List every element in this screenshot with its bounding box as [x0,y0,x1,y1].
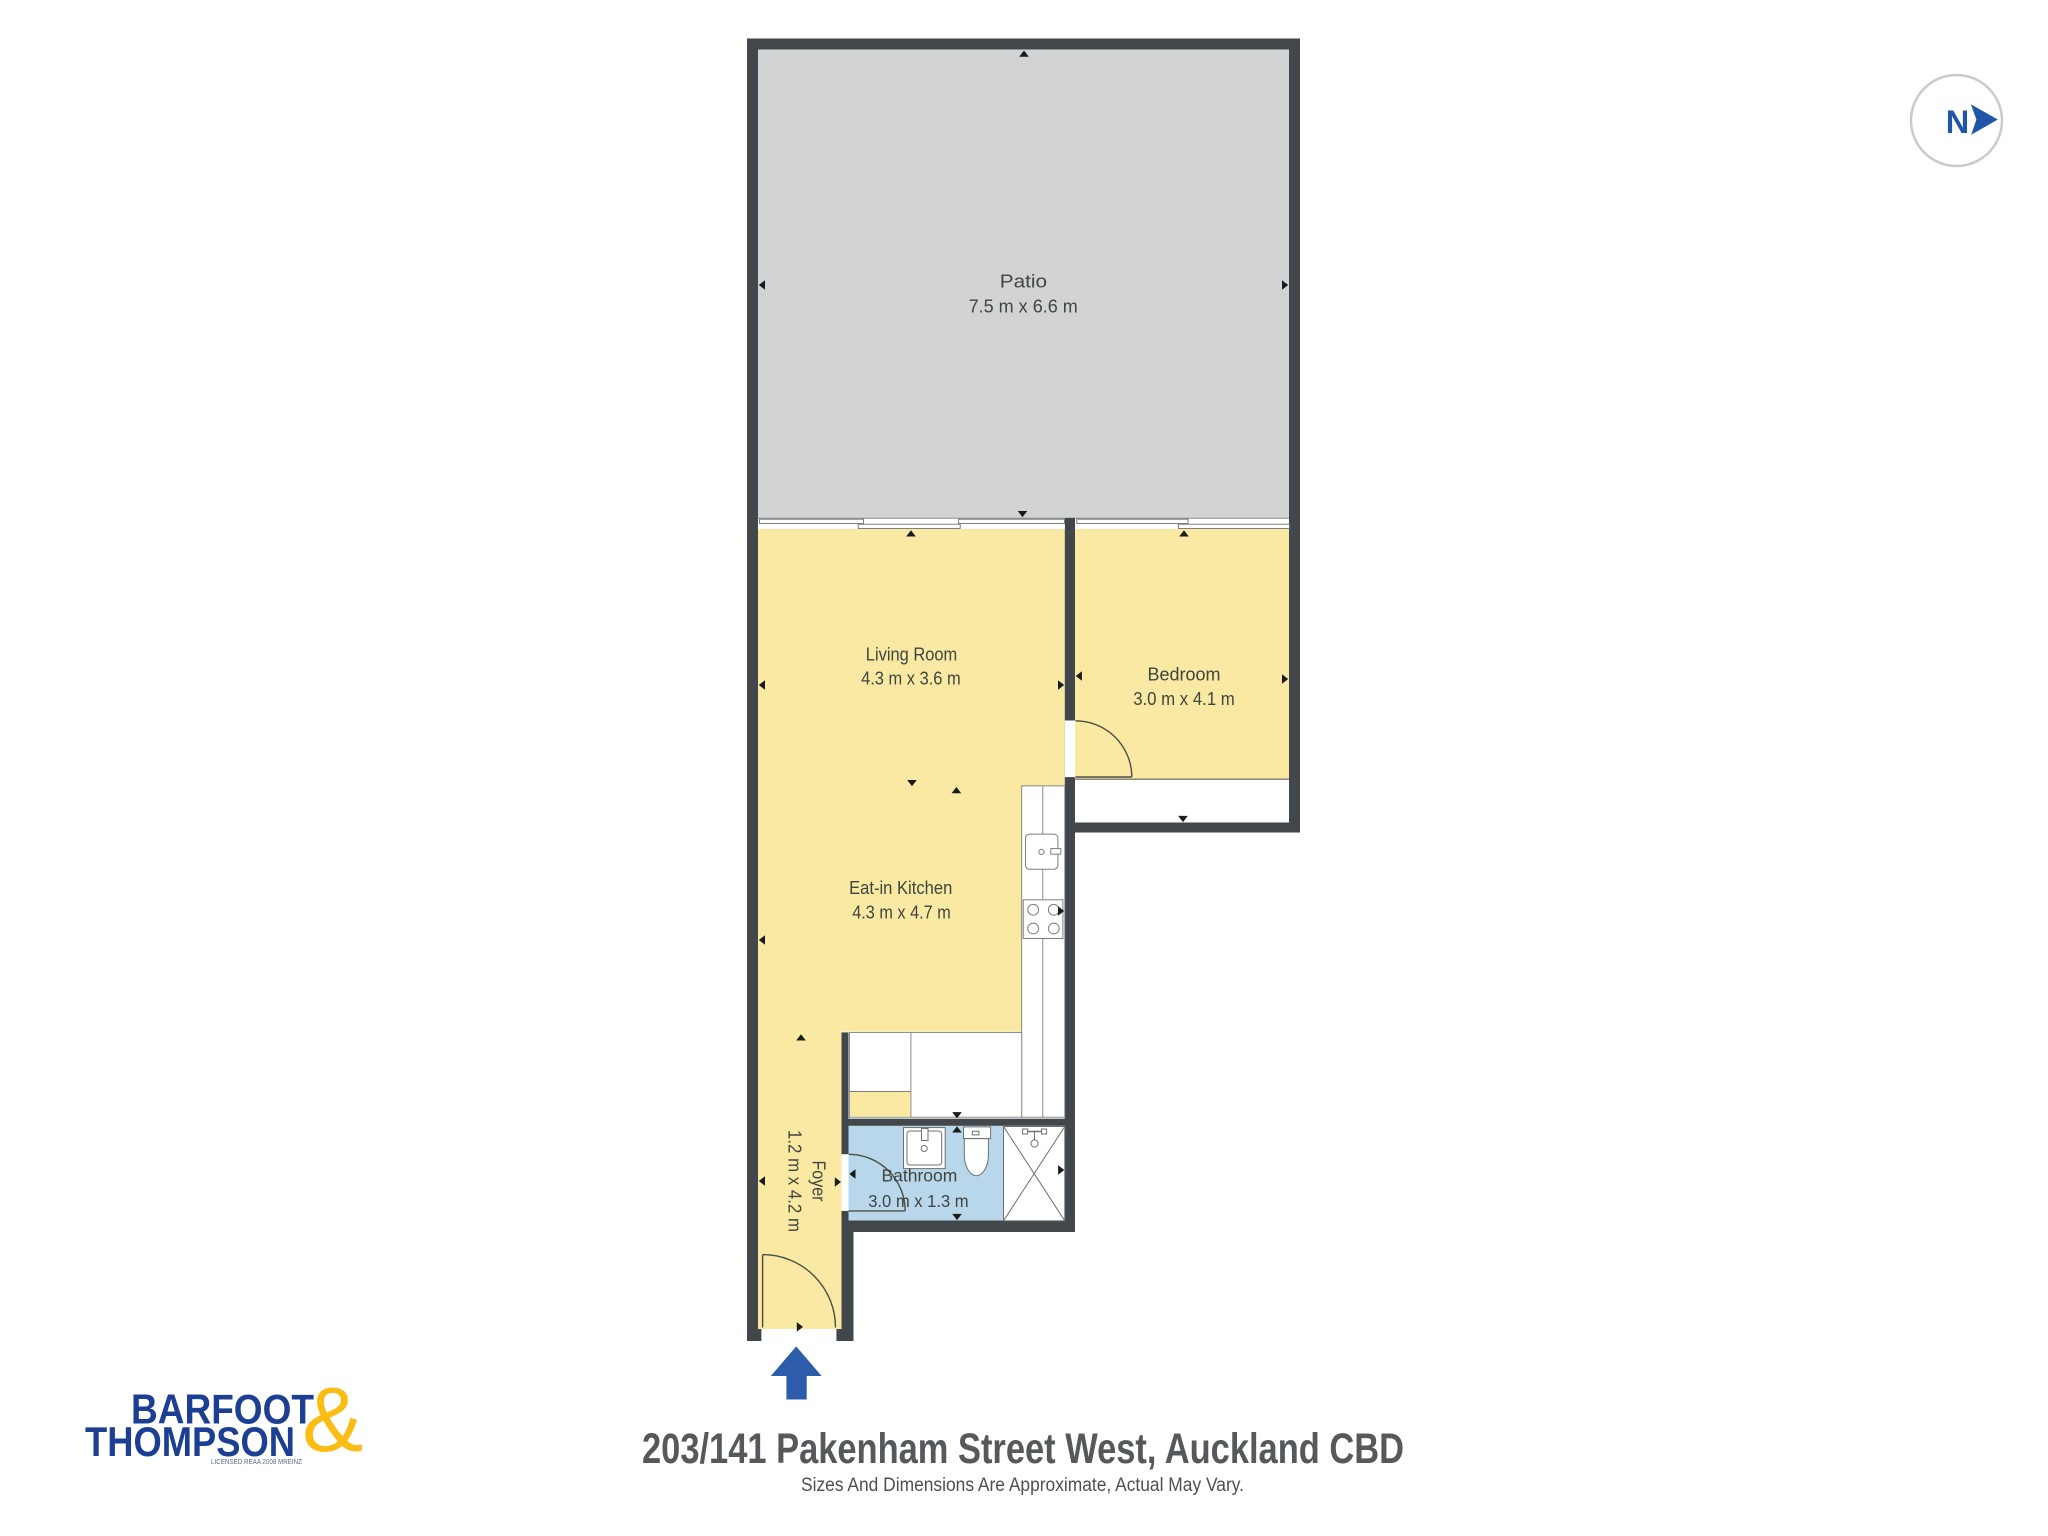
svg-text:Sizes And Dimensions Are Appro: Sizes And Dimensions Are Approximate, Ac… [801,1475,1244,1496]
svg-text:4.3 m x 3.6 m: 4.3 m x 3.6 m [861,668,961,689]
svg-text:LICENSED REAA 2008 MREINZ: LICENSED REAA 2008 MREINZ [211,1457,302,1466]
svg-text:Bathroom: Bathroom [882,1166,958,1186]
svg-text:Eat-in Kitchen: Eat-in Kitchen [849,877,952,898]
svg-text:N: N [1946,104,1969,140]
svg-text:Foyer: Foyer [808,1161,829,1202]
svg-text:1.2 m x 4.2 m: 1.2 m x 4.2 m [784,1130,805,1232]
svg-text:203/141 Pakenham Street West,: 203/141 Pakenham Street West, Auckland C… [642,1425,1404,1473]
svg-text:3.0 m x 1.3 m: 3.0 m x 1.3 m [868,1191,968,1211]
svg-text:Patio: Patio [1000,270,1047,291]
svg-text:3.0 m x 4.1 m: 3.0 m x 4.1 m [1133,688,1235,709]
svg-text:Bedroom: Bedroom [1148,664,1221,685]
svg-text:7.5 m x 6.6 m: 7.5 m x 6.6 m [969,295,1078,316]
svg-text:4.3 m x 4.7 m: 4.3 m x 4.7 m [852,902,951,923]
svg-text:Living Room: Living Room [866,644,957,665]
svg-text:&: & [302,1369,363,1471]
